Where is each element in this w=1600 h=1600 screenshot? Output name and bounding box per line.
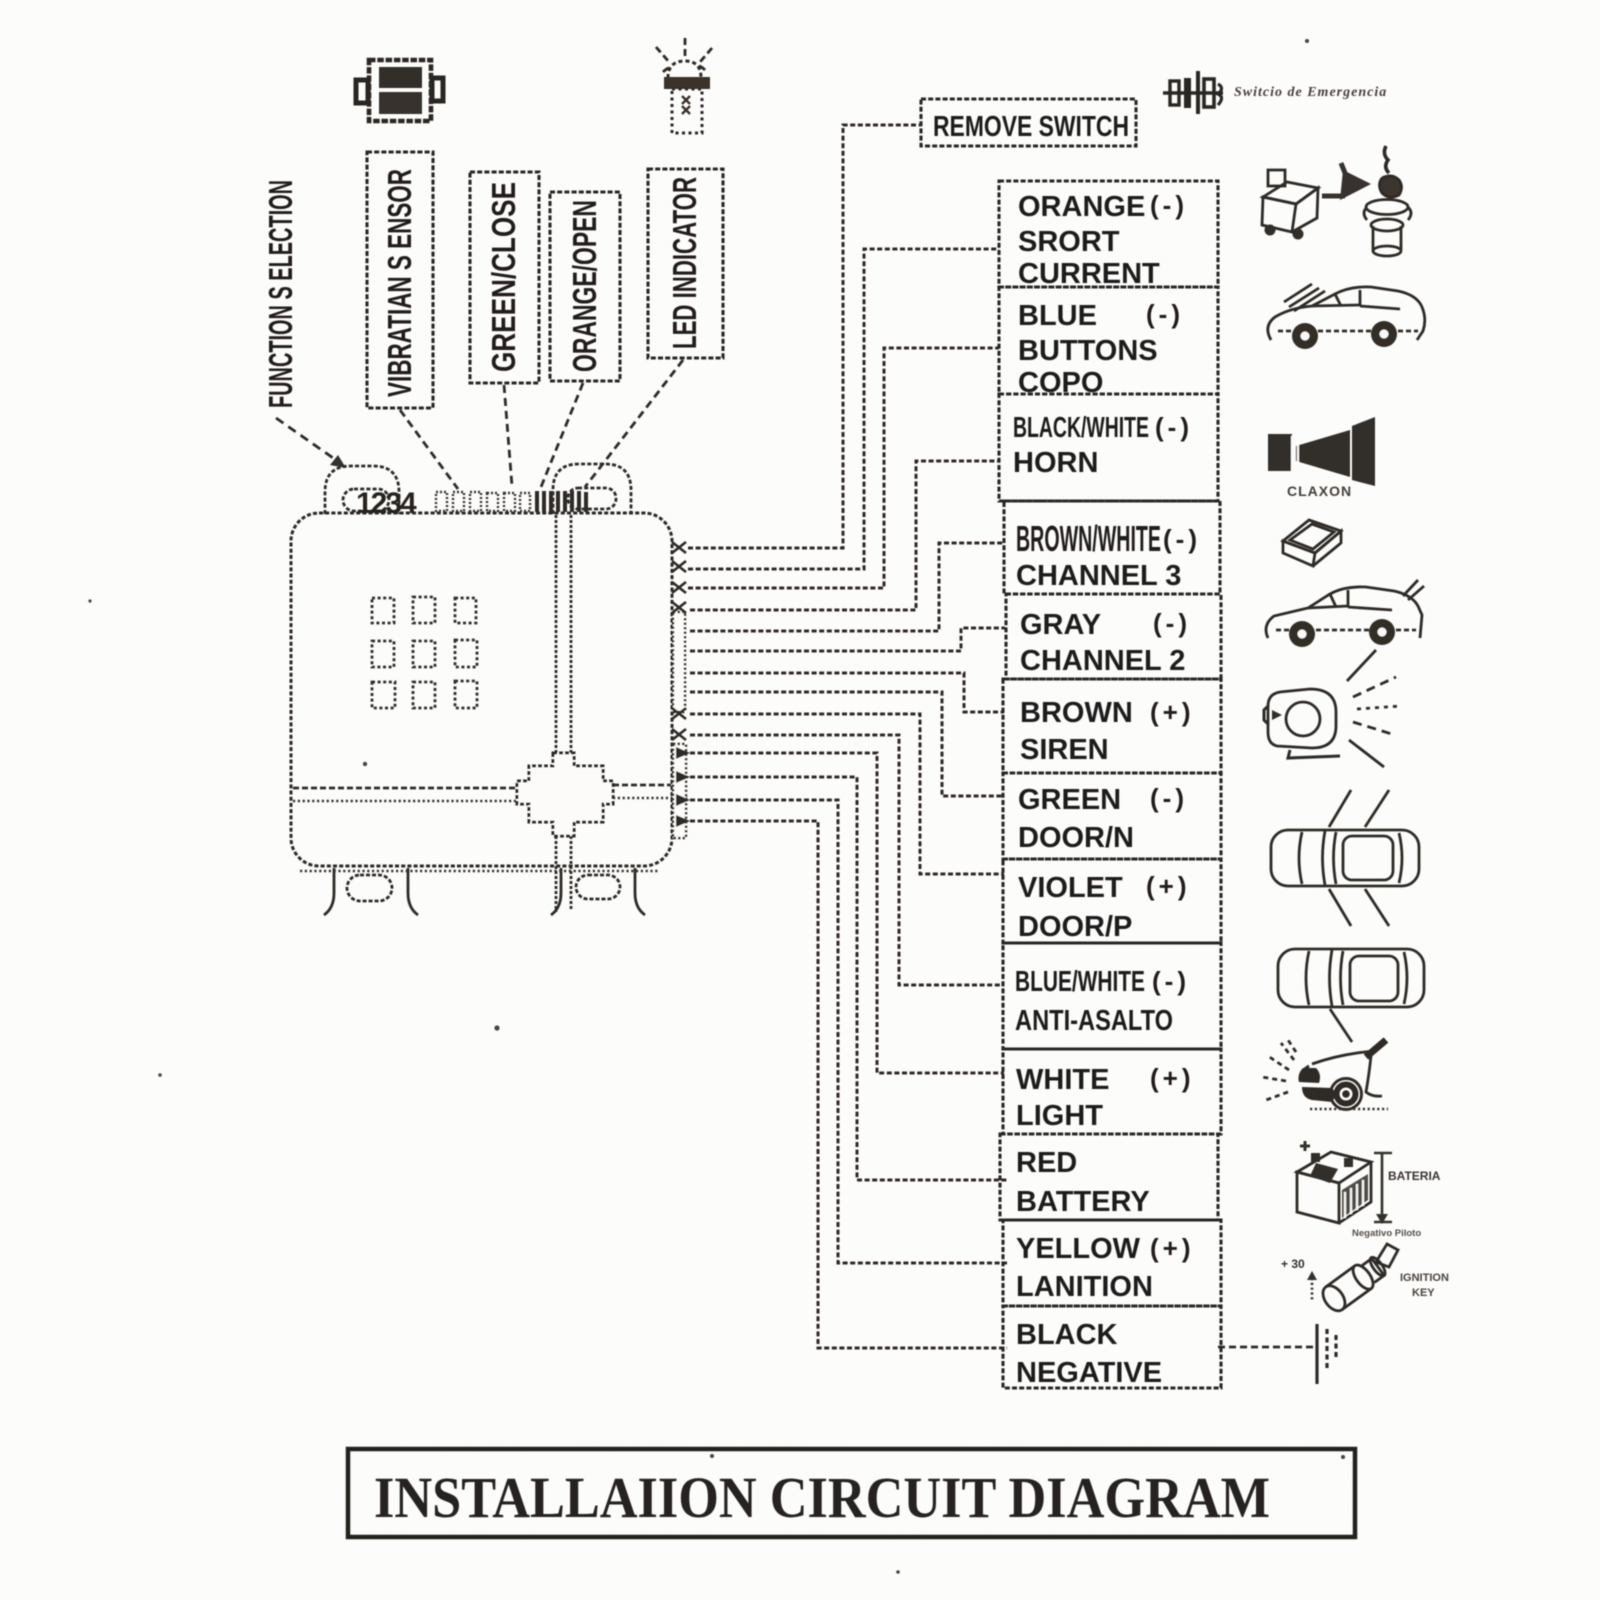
- svg-text:(-): (-): [1150, 190, 1188, 220]
- svg-text:(+): (+): [1146, 871, 1191, 901]
- svg-text:INSTALLAIION CIRCUIT DIAGRAM: INSTALLAIION CIRCUIT DIAGRAM: [374, 1465, 1270, 1530]
- svg-text:(+): (+): [1150, 1063, 1195, 1093]
- svg-text:VIOLET: VIOLET: [1018, 872, 1123, 904]
- svg-text:WHITE: WHITE: [1016, 1064, 1109, 1096]
- svg-text:ORANGE: ORANGE: [1018, 191, 1145, 223]
- svg-text:(+): (+): [1150, 697, 1195, 727]
- svg-text:SRORT: SRORT: [1018, 226, 1120, 258]
- svg-text:VIBRATIAN S ENSOR: VIBRATIAN S ENSOR: [381, 169, 418, 397]
- svg-text:(+): (+): [1150, 1233, 1195, 1263]
- svg-text:YELLOW: YELLOW: [1016, 1233, 1141, 1265]
- svg-text:CHANNEL 2: CHANNEL 2: [1020, 645, 1185, 677]
- svg-text:GRAY: GRAY: [1020, 609, 1101, 641]
- svg-text:(-): (-): [1153, 608, 1191, 638]
- svg-text:BATERIA: BATERIA: [1388, 1169, 1441, 1183]
- svg-text:CURRENT: CURRENT: [1018, 258, 1160, 290]
- svg-text:ANTI-ASALTO: ANTI-ASALTO: [1015, 1005, 1173, 1037]
- svg-text:BLUE: BLUE: [1018, 300, 1097, 332]
- svg-text:DOOR/N: DOOR/N: [1018, 822, 1134, 854]
- svg-text:(-): (-): [1155, 412, 1193, 442]
- svg-text:+ 30: + 30: [1281, 1257, 1305, 1271]
- svg-text:IGNITION: IGNITION: [1400, 1272, 1449, 1284]
- svg-text:(-): (-): [1150, 783, 1188, 813]
- svg-text:LIGHT: LIGHT: [1016, 1100, 1103, 1132]
- svg-text:Switcio de Emergencia: Switcio de Emergencia: [1234, 85, 1387, 100]
- svg-text:FUNCTION S ELECTION: FUNCTION S ELECTION: [262, 180, 299, 408]
- svg-text:SIREN: SIREN: [1020, 734, 1109, 766]
- svg-text:NEGATIVE: NEGATIVE: [1016, 1357, 1162, 1389]
- svg-text:BLACK/WHITE: BLACK/WHITE: [1013, 412, 1149, 444]
- svg-text:(-): (-): [1163, 524, 1201, 554]
- svg-text:DOOR/P: DOOR/P: [1018, 911, 1132, 943]
- svg-text:BUTTONS: BUTTONS: [1018, 335, 1158, 367]
- svg-text:KEY: KEY: [1412, 1287, 1435, 1299]
- svg-text:CHANNEL 3: CHANNEL 3: [1016, 560, 1181, 592]
- svg-text:(-): (-): [1152, 966, 1190, 996]
- svg-text:BLACK: BLACK: [1016, 1319, 1118, 1351]
- svg-text:LED INDICATOR: LED INDICATOR: [666, 177, 703, 349]
- svg-text:(-): (-): [1146, 299, 1184, 329]
- svg-text:CLAXON: CLAXON: [1287, 483, 1352, 499]
- svg-text:BATTERY: BATTERY: [1016, 1186, 1150, 1218]
- svg-text:RED: RED: [1016, 1147, 1077, 1179]
- svg-text:GREEN/CLOSE: GREEN/CLOSE: [485, 182, 522, 372]
- svg-text:1234: 1234: [356, 487, 417, 520]
- svg-text:BROWN: BROWN: [1020, 697, 1133, 729]
- svg-text:BLUE/WHITE: BLUE/WHITE: [1015, 966, 1145, 998]
- svg-text:REMOVE SWITCH: REMOVE SWITCH: [933, 111, 1129, 143]
- svg-text:BROWN/WHITE: BROWN/WHITE: [1016, 518, 1161, 559]
- svg-text:LANITION: LANITION: [1016, 1271, 1153, 1303]
- svg-text:ORANGE/OPEN: ORANGE/OPEN: [566, 200, 603, 372]
- svg-text:Negativo Piloto: Negativo Piloto: [1352, 1228, 1421, 1239]
- svg-text:GREEN: GREEN: [1018, 784, 1121, 816]
- svg-text:HORN: HORN: [1013, 447, 1098, 479]
